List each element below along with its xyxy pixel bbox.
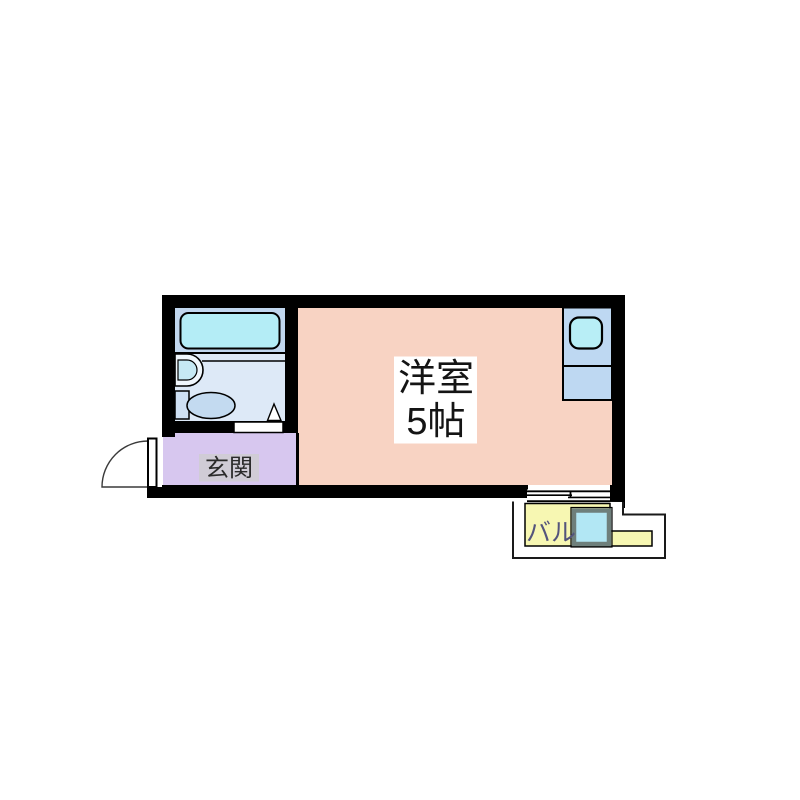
entrance-door-leaf-icon [148,439,157,488]
balcony-label: バル [526,519,576,547]
bathtub-icon [181,313,280,349]
floor-plan: 洋室 5帖 玄関 バル [0,0,800,800]
balcony-window-icon [527,490,610,503]
wall-bathroom-right [285,308,298,433]
wall-entrance-divider [296,433,299,485]
wall-bottom-door-corner [147,487,163,498]
floor-plan-canvas: 洋室 5帖 玄関 バル [0,0,800,800]
washer-pan-icon [574,511,609,545]
kitchen-sink-icon [570,318,602,349]
washbasin-icon [178,360,197,380]
wall-bottom [162,485,528,498]
entrance-label: 玄関 [205,455,253,482]
wall-right [612,295,625,498]
entrance-door-swing-icon [102,441,148,487]
toilet-bowl-icon [187,393,235,419]
wall-top [162,295,625,308]
western-room-size-label: 5帖 [406,401,465,443]
bathroom-door-opening [234,422,283,433]
wall-left [162,295,175,437]
western-room-label: 洋室 [398,358,474,400]
